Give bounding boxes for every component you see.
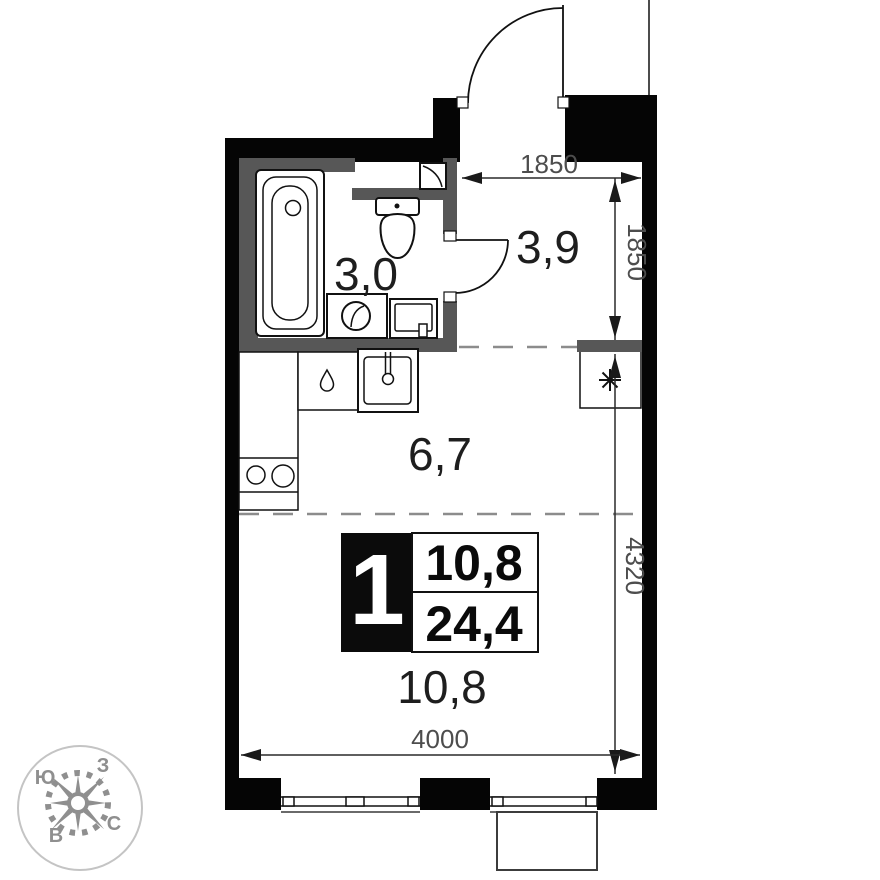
bathtub [256, 170, 324, 336]
compass-rose: Ю З В С [18, 746, 142, 870]
window-left [281, 778, 420, 812]
dim-text-main-depth: 4320 [620, 537, 650, 595]
dim-arrow-right [621, 172, 641, 184]
room-area-kitchen: 6,7 [408, 428, 472, 480]
entry-block-right [565, 95, 657, 162]
stove-burner-left [247, 466, 265, 484]
entrance-jamb-notch-right [558, 97, 569, 108]
washing-machine-door [342, 302, 370, 330]
bathroom-door [444, 231, 508, 302]
wall-left [225, 138, 239, 810]
dim-arrow-left2 [241, 749, 261, 761]
kitchen-counter [239, 352, 358, 510]
badge-total-area: 24,4 [425, 596, 523, 652]
room-area-bathroom: 3,0 [334, 248, 398, 300]
window-left-mullion-a [283, 797, 294, 806]
window-left-mullion-b [346, 797, 364, 806]
entrance-door-swing-arc [468, 8, 563, 103]
bathtub-drain [286, 201, 301, 216]
dim-arrow-down [609, 316, 621, 338]
bathroom-jamb-notch-top [444, 231, 456, 241]
bathroom-sink [390, 299, 437, 338]
dim-arrow-down2 [609, 750, 621, 772]
dim-arrow-up [609, 180, 621, 202]
apartment-info-badge: 1 10,8 24,4 [341, 533, 538, 652]
kitchen-sink [358, 349, 418, 412]
floor-plan-page: 1850 1850 4320 4000 3,0 3,9 6,7 10,8 1 1… [0, 0, 880, 880]
dim-arrow-right2 [620, 749, 640, 761]
compass-east: В [49, 825, 63, 847]
room-area-living: 10,8 [397, 661, 487, 713]
dim-text-main-width: 4000 [411, 724, 469, 754]
window-right [490, 778, 597, 812]
washing-machine [327, 294, 387, 338]
vent-box [420, 163, 446, 189]
stove-burner-right [272, 465, 294, 487]
bathroom-door-swing-arc [455, 240, 508, 293]
counter-left-strip [239, 352, 298, 510]
badge-living-area: 10,8 [425, 535, 522, 591]
bath-wall-bottom [239, 338, 457, 352]
dimension-main-width: 4000 [241, 724, 640, 761]
utility-niche [580, 352, 641, 408]
hall-wall-stub [577, 340, 642, 352]
entrance-jamb-notch-left [457, 97, 468, 108]
compass-north: С [107, 813, 121, 835]
floor-plan: 1850 1850 4320 4000 3,0 3,9 6,7 10,8 1 1… [0, 0, 880, 880]
dim-text-entry-width: 1850 [520, 149, 578, 179]
kitchen-faucet-head [383, 374, 394, 385]
room-area-hallway: 3,9 [516, 221, 580, 273]
window-left-mullion-c [408, 797, 419, 806]
entry-jamb-left [433, 98, 460, 162]
bathroom-jamb-notch-bottom [444, 292, 456, 302]
toilet-button [395, 204, 400, 209]
dim-arrow-left [462, 172, 482, 184]
dim-text-hallway-depth: 1850 [622, 223, 652, 281]
badge-room-count: 1 [349, 534, 405, 646]
compass-south: Ю [35, 767, 56, 789]
compass-west: З [97, 755, 110, 777]
entrance-door [457, 5, 569, 108]
bathroom-sink-tap [419, 324, 427, 337]
window-right-opening [490, 778, 597, 812]
balcony-basket [497, 812, 597, 870]
window-left-opening [281, 778, 420, 812]
window-right-mullion-b [586, 797, 597, 806]
window-right-mullion-a [492, 797, 503, 806]
compass-hub [69, 794, 87, 812]
